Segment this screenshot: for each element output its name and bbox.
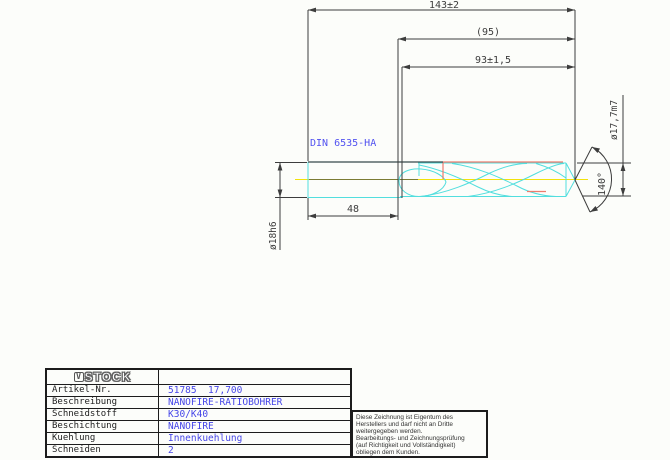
table-row-schneiden: Schneiden 2 (47, 444, 350, 456)
table-row-kuehlung: Kuehlung Innenkuehlung (47, 432, 350, 444)
logo-text: STOCK (85, 372, 132, 383)
stock-logo: VSTOCK (47, 370, 159, 384)
flute-runout (399, 169, 446, 197)
note-line: Herstellers und darf nicht an Dritte (356, 421, 483, 428)
note-line: Diese Zeichnung ist Eigentum des (356, 414, 483, 421)
dim-shank-diameter-text: ø18h6 (268, 221, 279, 250)
row-value: NANOFIRE (159, 421, 350, 432)
din-standard-label: DIN 6535-HA (310, 138, 376, 149)
row-label: Artikel-Nr. (47, 385, 159, 396)
dimension-overall-length: 143±2 (308, 0, 575, 12)
drawing-sheet: 143±2 (95) 93±1,5 48 (0, 0, 670, 460)
row-label: Schneiden (47, 445, 159, 456)
row-label: Beschreibung (47, 397, 159, 408)
logo-mark-icon: V (74, 372, 84, 382)
row-value: 51785 17,700 (159, 385, 350, 396)
row-label: Kuehlung (47, 433, 159, 444)
dimension-shank-length: 48 (308, 204, 398, 218)
table-row-artikel-nr: Artikel-Nr. 51785 17,700 (47, 384, 350, 396)
logo-row-spacer (159, 370, 350, 384)
note-line: obliegen dem Kunden. (356, 449, 483, 456)
dim-cutting-diameter-text: ø17,7m7 (609, 100, 620, 140)
row-value: 2 (159, 445, 350, 456)
row-value: K30/K40 (159, 409, 350, 420)
row-label: Beschichtung (47, 421, 159, 432)
table-row-beschichtung: Beschichtung NANOFIRE (47, 420, 350, 432)
dim-point-angle-text: 140° (597, 172, 608, 196)
dim-flute-text: 93±1,5 (475, 55, 511, 66)
table-row-beschreibung: Beschreibung NANOFIRE-RATIOBOHRER (47, 396, 350, 408)
title-block-table: VSTOCK Artikel-Nr. 51785 17,700 Beschrei… (45, 368, 352, 458)
table-row-logo: VSTOCK (47, 370, 350, 384)
dim-shank-length-text: 48 (347, 204, 359, 215)
note-line: (auf Richtigkeit und Vollständigkeit) (356, 442, 483, 449)
dimension-shank-diameter: ø18h6 (268, 163, 282, 251)
dimension-reference-length: (95) (398, 27, 575, 41)
dim-reference-text: (95) (476, 27, 500, 38)
ownership-note: Diese Zeichnung ist Eigentum des Herstel… (351, 410, 488, 458)
row-value: Innenkuehlung (159, 433, 350, 444)
dimension-flute-length: 93±1,5 (402, 55, 575, 69)
flute-helix (536, 164, 566, 179)
row-value: NANOFIRE-RATIOBOHRER (159, 397, 350, 408)
row-label: Schneidstoff (47, 409, 159, 420)
margin-highlight (443, 162, 563, 192)
note-line: Bearbeitungs- und Zeichnungsprüfung (356, 435, 483, 442)
dim-overall-text: 143±2 (429, 0, 459, 11)
flute-helix (419, 165, 516, 197)
note-line: weitergegeben werden. (356, 428, 483, 435)
table-row-schneidstoff: Schneidstoff K30/K40 (47, 408, 350, 420)
